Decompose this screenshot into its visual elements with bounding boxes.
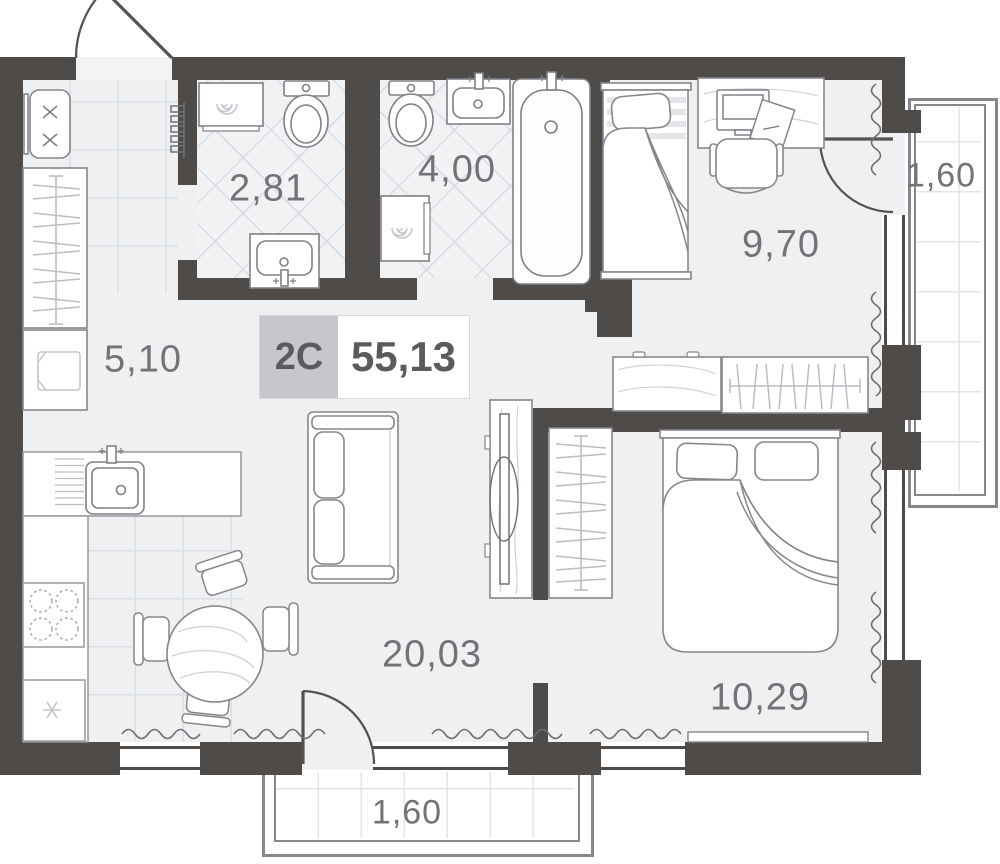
room-label-bedroom-large: 10,29: [710, 677, 810, 720]
wall-segment: [172, 57, 905, 80]
room-label-balcony-right: 1,60: [906, 157, 976, 196]
room-label-bathroom-small: 2,81: [229, 168, 307, 211]
wall-segment: [585, 278, 632, 312]
wall-segment: [585, 80, 610, 278]
wall-segment: [905, 110, 921, 133]
wall-segment: [882, 432, 921, 470]
window: [120, 746, 200, 770]
window: [601, 746, 685, 770]
room-label-bedroom-small: 9,70: [742, 224, 820, 267]
wall-segment: [882, 660, 921, 775]
wall-segment: [508, 742, 601, 775]
room-label-bathroom-large: 4,00: [418, 149, 496, 192]
wall-segment: [178, 278, 417, 300]
wall-segment: [178, 80, 197, 185]
room-label-balcony-bottom: 1,60: [372, 794, 442, 833]
hallway-tiles: [23, 80, 178, 293]
unit-total-area: 55,13: [338, 316, 469, 398]
balcony-right-doorway: [882, 133, 905, 215]
wall-segment: [200, 742, 302, 775]
room-label-hallway: 5,10: [104, 339, 182, 382]
window: [884, 470, 905, 660]
window: [884, 215, 905, 345]
wall-segment: [597, 312, 632, 337]
wall-segment: [533, 408, 548, 600]
room-label-living-kitchen: 20,03: [382, 634, 482, 677]
entrance-door-icon: [76, 0, 172, 58]
wall-segment: [345, 80, 380, 278]
bathroom-small-doorway: [178, 185, 197, 260]
wall-segment: [493, 278, 585, 300]
unit-badge: 2C 55,13: [259, 315, 470, 399]
wall-segment: [0, 742, 120, 775]
wall-segment: [535, 408, 905, 432]
wall-segment: [882, 57, 905, 133]
entry-threshold: [76, 57, 172, 80]
window: [373, 746, 508, 770]
wall-segment: [0, 57, 23, 775]
wall-segment: [685, 742, 905, 775]
wall-segment: [533, 683, 548, 742]
floor-plan: 5,10 2,81 4,00 9,70 1,60 20,03 10,29 1,6…: [0, 0, 1000, 864]
unit-type-label: 2C: [260, 316, 338, 398]
kitchen-tiles: [88, 517, 243, 742]
